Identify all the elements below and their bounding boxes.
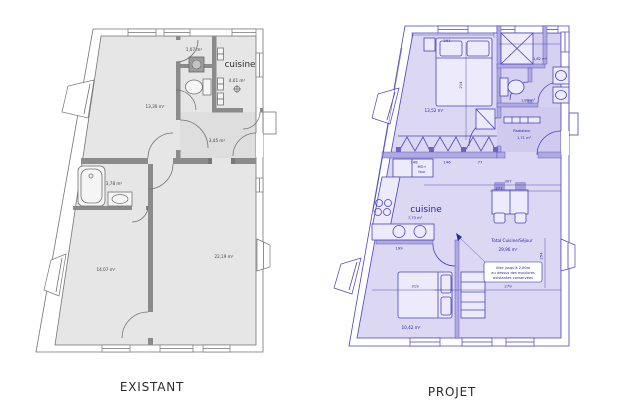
svg-text:307: 307 xyxy=(504,179,512,184)
existant-plan: 13,30 m² 1,07 m² cuisine 4,01 m² 3,45 m²… xyxy=(36,29,276,352)
floor-plans-canvas: 13,30 m² 1,07 m² cuisine 4,01 m² 3,45 m²… xyxy=(0,0,618,412)
label-sdb-area: 3,78 m² xyxy=(106,181,123,186)
wardrobe xyxy=(461,272,485,318)
note-line1: Vide jusqu'à 2,80m xyxy=(496,266,531,270)
label-chambre2-area: 10,42 m² xyxy=(401,325,420,330)
label-sejour-area: 13,30 m² xyxy=(145,104,164,109)
label-mo-four-1: MO+ xyxy=(418,165,427,169)
label-entree-area: 1,71 m² xyxy=(517,136,532,140)
label-cuisine: cuisine xyxy=(410,205,442,215)
note-line3: existantes conservées xyxy=(493,276,533,280)
svg-text:254: 254 xyxy=(539,252,544,260)
label-total-area: 29,96 m² xyxy=(498,247,517,252)
chair xyxy=(494,213,505,223)
label-cuisine: cuisine xyxy=(225,60,256,70)
svg-text:319: 319 xyxy=(411,284,419,289)
svg-text:214: 214 xyxy=(458,81,463,89)
label-total-cuisine-sejour: Total Cuisine/Séjour xyxy=(490,238,532,243)
label-cuisine-area: 4,01 m² xyxy=(229,78,246,83)
pillow xyxy=(441,275,451,293)
caption-projet: PROJET xyxy=(382,385,522,399)
caption-existant: EXISTANT xyxy=(82,380,222,394)
svg-text:279: 279 xyxy=(504,284,512,289)
existant-bay-left-1 xyxy=(62,80,94,118)
nightstand xyxy=(424,38,435,51)
svg-text:146: 146 xyxy=(443,160,451,165)
label-chambre-area: 14,07 m² xyxy=(96,267,115,272)
sink-counter xyxy=(372,224,434,240)
pillow xyxy=(441,297,451,315)
toilet-tank xyxy=(203,79,211,95)
label-chambre1-area: 13,52 m² xyxy=(424,108,443,113)
svg-text:277: 277 xyxy=(495,186,503,191)
svg-text:77: 77 xyxy=(478,160,483,165)
label-sejour2-area: 22,19 m² xyxy=(214,254,233,259)
svg-text:291: 291 xyxy=(443,38,451,43)
label-cuisine-area: 7,73 m² xyxy=(408,216,423,220)
pillow xyxy=(467,41,489,56)
toilet-tank xyxy=(500,78,508,96)
label-radiateur: Radiateur xyxy=(513,129,531,133)
projet-bed2 xyxy=(398,272,485,318)
toilet-bowl xyxy=(508,80,524,94)
projet-plan: Vide jusqu'à 2,80m au dessus des moulure… xyxy=(334,26,578,346)
chair xyxy=(515,213,526,223)
radiator xyxy=(504,117,540,123)
projet-pier xyxy=(569,113,578,135)
label-debarras-area: 1,07 m² xyxy=(186,47,203,52)
label-mo-four-2: four xyxy=(418,170,426,174)
existant-pier xyxy=(263,112,276,134)
plans-drawing: 13,30 m² 1,07 m² cuisine 4,01 m² 3,45 m²… xyxy=(0,0,618,412)
pillow xyxy=(440,41,462,56)
label-sde-area: 1,82 m² xyxy=(533,57,548,61)
existant-hall-floor xyxy=(180,112,256,158)
note-line2: au dessus des moulures xyxy=(491,271,535,275)
label-hall-area: 3,45 m² xyxy=(209,138,226,143)
svg-text:199: 199 xyxy=(395,246,403,251)
existant-bay-left-2 xyxy=(44,254,66,296)
label-wc-area: 1,80 m² xyxy=(521,99,536,103)
svg-text:148: 148 xyxy=(410,160,418,165)
toilet-bowl xyxy=(186,80,203,94)
